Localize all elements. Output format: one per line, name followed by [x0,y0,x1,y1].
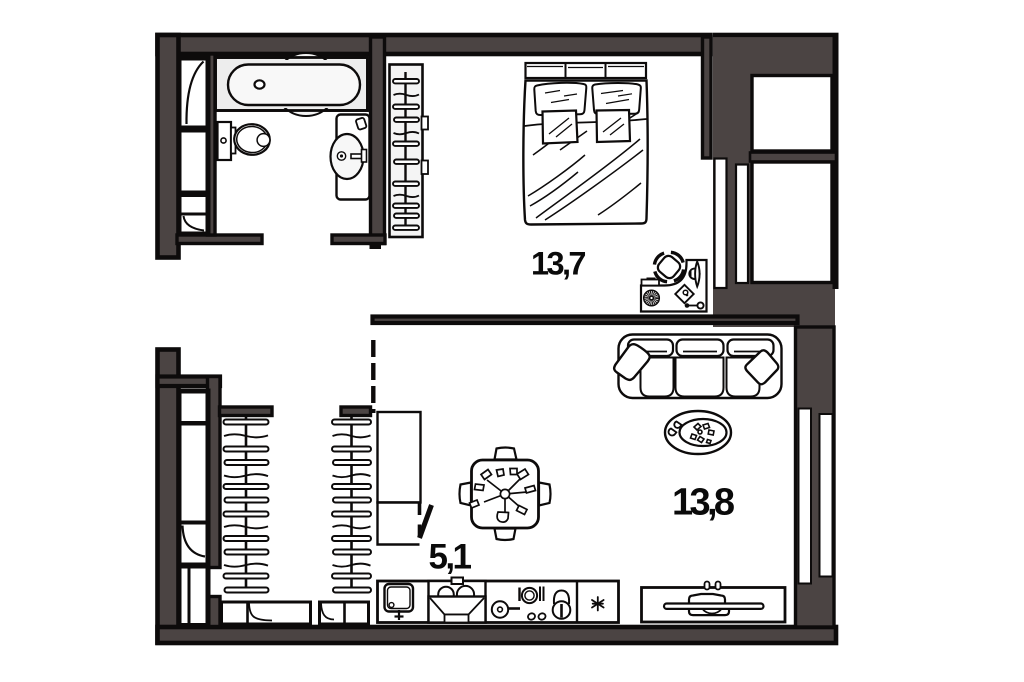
svg-text:13,8: 13,8 [672,482,735,524]
svg-text:5,1: 5,1 [429,538,473,577]
svg-text:13,7: 13,7 [531,246,587,282]
